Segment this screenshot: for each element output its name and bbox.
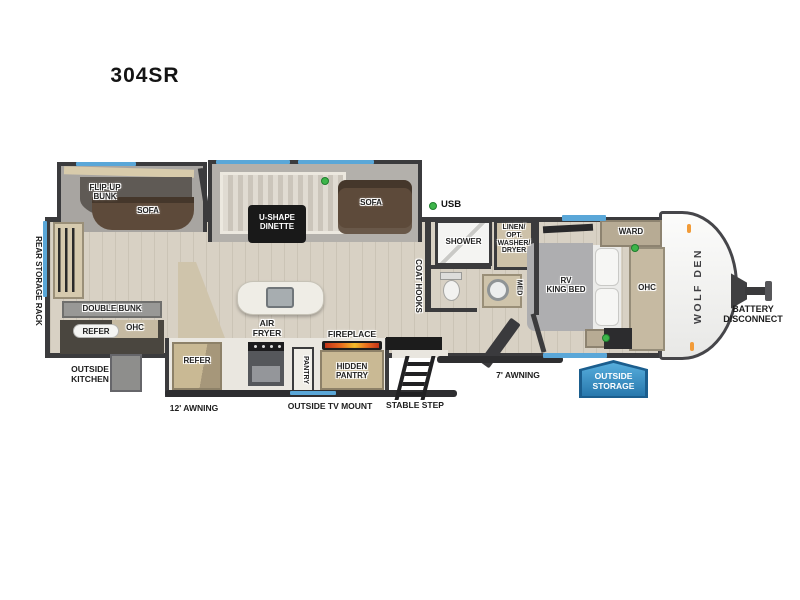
bedroom-top-window	[562, 215, 606, 221]
linen-label: LINEN/ OPT. WASHER/ DRYER	[494, 224, 534, 255]
bed-pillow-bottom	[595, 288, 619, 326]
cap-marker-light-bottom	[690, 342, 694, 351]
dinette-window-right	[298, 160, 374, 164]
rear-storage-rack-slats	[58, 228, 78, 292]
coat-hooks-label: COAT HOOKS	[411, 254, 423, 318]
shower-label: SHOWER	[435, 237, 492, 246]
sofa-left-label: SOFA	[128, 206, 168, 215]
bath-mid-wall	[431, 265, 491, 269]
bed-pillow-top	[595, 248, 619, 286]
usb-legend-label: USB	[441, 200, 471, 211]
ohc-bedroom-label: OHC	[629, 283, 665, 292]
usb-dot-ward	[631, 244, 639, 252]
awning-12-label: 12' AWNING	[154, 404, 234, 414]
toilet-tank	[440, 272, 462, 280]
battery-disconnect-label: BATTERY DISCONNECT	[710, 304, 796, 325]
fireplace-shape	[322, 341, 382, 350]
hidden-pantry-label: HIDDEN PANTRY	[320, 362, 384, 380]
range-burner-dots	[254, 345, 257, 348]
ohc-rear-label: OHC	[115, 323, 155, 332]
page-title: 304SR	[100, 64, 190, 88]
air-fryer-label: AIR FRYER	[237, 319, 297, 339]
floorplan-canvas: 304SR WOLF DEN BATTERY DISCONNECT REAR S…	[0, 0, 800, 600]
outside-kitchen-label: OUTSIDE KITCHEN	[48, 365, 132, 385]
bunk-slide-window	[76, 162, 136, 166]
refer-rear-label: REFER	[73, 327, 119, 336]
cap-marker-light-top	[687, 224, 691, 233]
refer-kitchen-label: REFER	[172, 356, 222, 365]
awning-7-label: 7' AWNING	[478, 371, 558, 381]
outside-tv-mount-label: OUTSIDE TV MOUNT	[275, 402, 385, 412]
bath-bottom-wall	[431, 308, 477, 312]
bedroom-bottom-window	[543, 353, 607, 358]
flip-up-bunk-label: FLIP-UP BUNK	[79, 183, 131, 201]
toilet-bowl	[443, 280, 460, 301]
bath-right-wall	[534, 219, 539, 315]
range-front	[252, 366, 280, 382]
double-bunk-label: DOUBLE BUNK	[62, 304, 162, 313]
usb-legend-dot	[429, 202, 437, 210]
sofa-right-label: SOFA	[349, 198, 393, 207]
rear-storage-rack-label: REAR STORAGE RACK	[31, 233, 43, 329]
usb-dot-bed	[602, 334, 610, 342]
usb-dot-dinette	[321, 177, 329, 185]
hitch-coupler	[765, 281, 772, 301]
pantry-label: PANTRY	[297, 344, 309, 396]
brand-wordmark: WOLF DEN	[692, 231, 706, 341]
dinette-label: U-SHAPE DINETTE	[248, 213, 306, 231]
entry-step-platform	[386, 337, 442, 350]
rear-window	[43, 221, 47, 297]
bath-sink	[487, 279, 509, 301]
fireplace-label: FIREPLACE	[314, 330, 390, 340]
outside-storage-label: OUTSIDE STORAGE	[579, 372, 648, 392]
refer-kitchen-shape	[172, 342, 222, 390]
island-sink	[266, 287, 294, 308]
ohc-bedroom-cabinet	[629, 247, 665, 351]
king-bed-label: RV KING BED	[537, 276, 595, 294]
med-cabinet-label: MED	[512, 273, 523, 303]
dinette-window-left	[216, 160, 290, 164]
ward-label: WARD	[600, 227, 662, 236]
stable-step-label: STABLE STEP	[376, 401, 454, 411]
